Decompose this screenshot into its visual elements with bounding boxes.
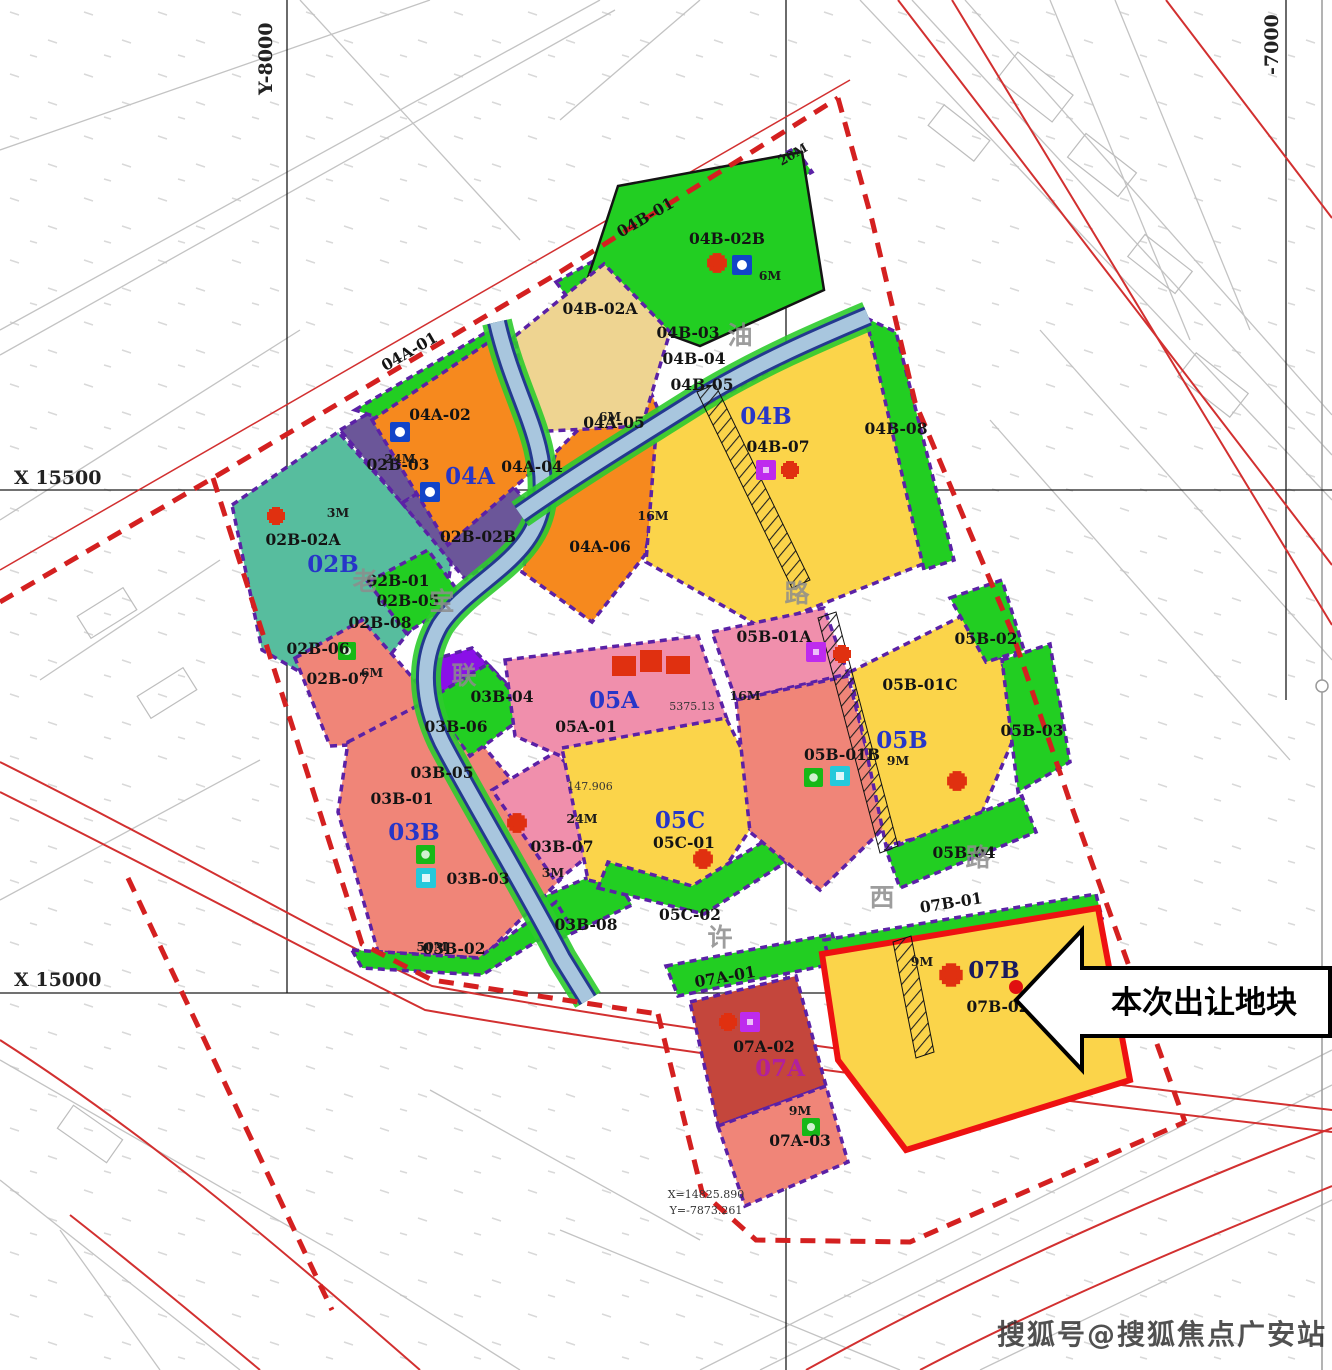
- parcel-label: 04A-04: [501, 457, 563, 476]
- red-facility-icon: [939, 963, 962, 986]
- parcel-label: 02B-02A: [266, 530, 342, 549]
- parcel-label: 05B-03: [1001, 721, 1064, 740]
- parcel-label: 03B-07: [531, 837, 594, 856]
- parcel-label: 03B-01: [371, 789, 434, 808]
- road-char: 老: [352, 567, 377, 596]
- parcel-label: 05B-01B: [804, 745, 880, 764]
- blue-facility-icon: [420, 482, 440, 502]
- cyan-facility-icon: [416, 868, 436, 888]
- green-facility-icon: [416, 845, 435, 864]
- dim-label: 16M: [729, 688, 760, 703]
- callout-label: 本次出让地块: [1111, 985, 1297, 1021]
- zone-label: 04B: [740, 403, 791, 430]
- parcel-label: 04B-03: [657, 323, 720, 342]
- parcel-label: 05B-01A: [737, 627, 813, 646]
- parcel-label: 05C-01: [653, 833, 715, 852]
- red-facility-icon: [781, 461, 799, 479]
- road-char: 西: [869, 883, 894, 912]
- parcel-label: 04B-08: [865, 419, 928, 438]
- blue-facility-icon: [732, 255, 752, 275]
- zone-label: 05C: [655, 807, 705, 834]
- dim-label: 3M: [542, 865, 565, 880]
- parcel-label: 04B-02A: [563, 299, 639, 318]
- road-char: 联: [451, 661, 476, 690]
- red-facility-icon: [719, 1013, 737, 1031]
- annotation: X=14825.890: [668, 1188, 745, 1201]
- parcel-label: 05B-01C: [882, 675, 957, 694]
- blue-facility-icon: [390, 422, 410, 442]
- parcel-label: 03B-05: [411, 763, 474, 782]
- parcel-label: 04A-02: [409, 405, 471, 424]
- zone-label: 07B: [968, 957, 1019, 984]
- parcel-label: 02B-02B: [440, 527, 516, 546]
- red-facility-icon: [507, 813, 527, 833]
- grid-label-y7000: -7000: [1261, 14, 1283, 75]
- road-char: 许: [707, 923, 732, 952]
- road-char: 油: [727, 321, 752, 350]
- parcel-label: 04B-07: [747, 437, 810, 456]
- dim-label: 24M: [566, 811, 597, 826]
- parcel-label: 03B-08: [555, 915, 618, 934]
- annotation: 5375.13: [669, 700, 715, 713]
- road-char: 宝: [429, 587, 454, 616]
- red-facility-icon: [267, 507, 285, 525]
- parcel-label: 04B-04: [663, 349, 726, 368]
- frame-tick-circle: [1316, 680, 1328, 692]
- parcel-label: 04A-06: [569, 537, 631, 556]
- grid-label-y8000: Y-8000: [255, 23, 277, 96]
- grid-label-x15500: X 15500: [14, 467, 101, 489]
- annotation: Y=-7873.261: [669, 1204, 743, 1217]
- parcel-label: 03B-03: [447, 869, 510, 888]
- planning-map: X 15500 X 15000 Y-8000 -7000: [0, 0, 1332, 1370]
- cyan-facility-icon: [830, 766, 850, 786]
- parcel-label: 03B-04: [471, 687, 534, 706]
- parcel-label: 07A-02: [733, 1037, 795, 1056]
- red-facility-icon: [947, 771, 967, 791]
- zone-label: 07A: [755, 1055, 806, 1082]
- dim-label: 16M: [637, 508, 668, 523]
- zone-label: 04A: [445, 463, 496, 490]
- zone-label: 02B: [307, 551, 358, 578]
- watermark-text: 搜狐号@搜狐焦点广安站: [997, 1318, 1327, 1351]
- red-facility-icon: [833, 645, 851, 663]
- dim-label: 6M: [361, 665, 384, 680]
- parcel-label: 04B-05: [671, 375, 734, 394]
- parcel-label: 04B-02B: [689, 229, 765, 248]
- dim-label: 3M: [327, 505, 350, 520]
- parcel-label: 07A-03: [769, 1131, 831, 1150]
- parcel-label: 05A-01: [555, 717, 617, 736]
- road-char: 路: [965, 843, 991, 872]
- zone-label: 05B: [876, 727, 927, 754]
- road-char: 路: [784, 579, 810, 608]
- red-facility-icon: [707, 253, 727, 273]
- dim-label: 9M: [911, 954, 934, 969]
- purple-facility-icon: [740, 1012, 760, 1032]
- parcel-label: 03B-06: [425, 717, 488, 736]
- parcel-label: 02B-06: [287, 639, 350, 658]
- parcel-label: 05C-02: [659, 905, 721, 924]
- red-facility-icon: [693, 849, 713, 869]
- dim-label: 6M: [759, 268, 782, 283]
- dim-label: 50M: [416, 939, 447, 954]
- green-facility-icon: [804, 768, 823, 787]
- map-canvas: X 15500 X 15000 Y-8000 -7000: [0, 0, 1332, 1370]
- dim-label: 9M: [789, 1103, 812, 1118]
- zone-label: 03B: [388, 819, 439, 846]
- parcel-label: 05B-02: [955, 629, 1018, 648]
- zone-label: 05A: [589, 687, 640, 714]
- dim-label: 24M: [384, 451, 415, 466]
- purple-facility-icon: [756, 460, 776, 480]
- dim-label: 9M: [887, 753, 910, 768]
- parcel-label: 02B-08: [349, 613, 412, 632]
- annotation: 147.906: [567, 780, 613, 793]
- grid-label-x15000: X 15000: [14, 969, 101, 991]
- dim-label: 6M: [599, 409, 622, 424]
